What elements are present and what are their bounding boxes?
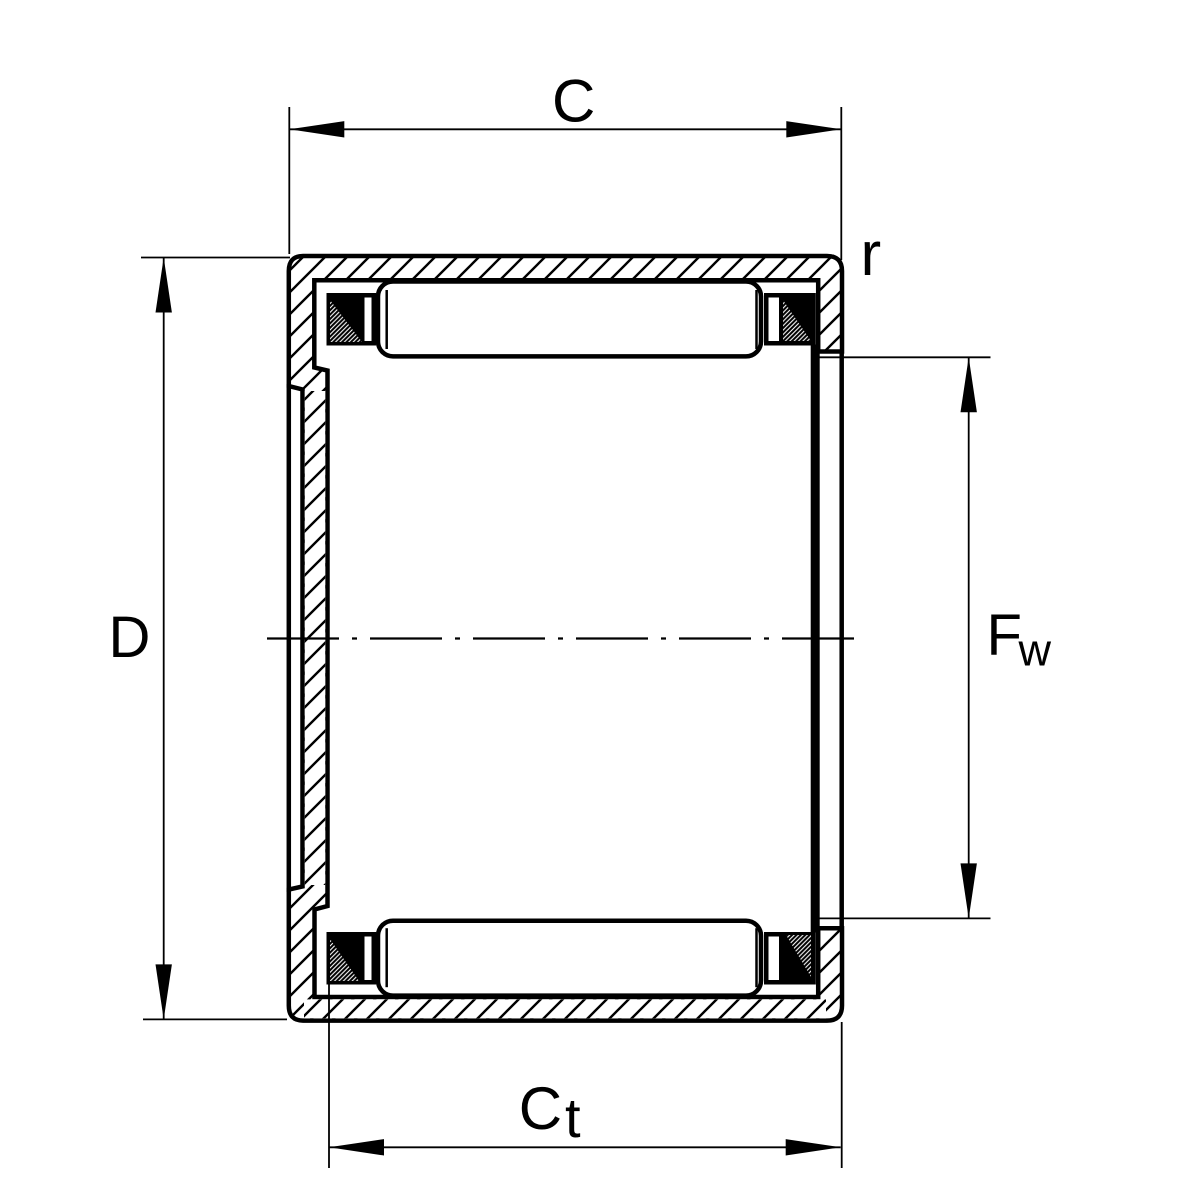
svg-text:C: C: [519, 1075, 562, 1142]
svg-text:r: r: [861, 220, 882, 289]
svg-text:w: w: [1018, 624, 1052, 675]
svg-text:C: C: [552, 68, 595, 135]
svg-text:D: D: [109, 605, 151, 670]
svg-text:t: t: [565, 1086, 581, 1149]
svg-text:F: F: [987, 603, 1022, 668]
